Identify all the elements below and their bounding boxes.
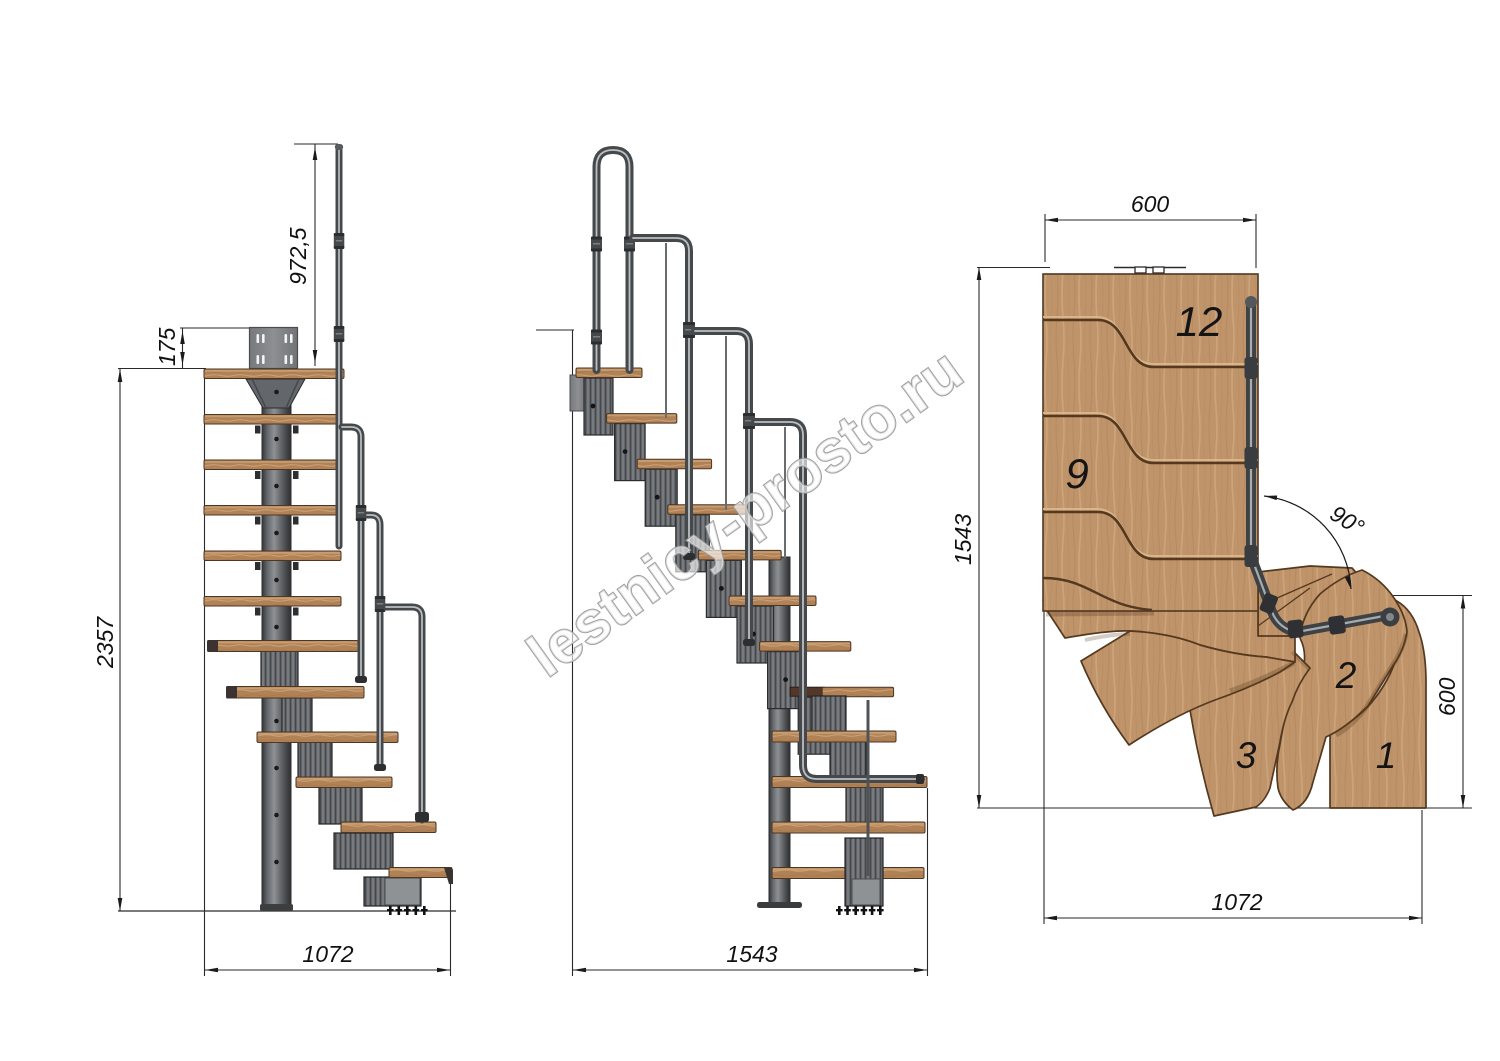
svg-text:3: 3 bbox=[1236, 735, 1257, 776]
svg-text:600: 600 bbox=[1434, 677, 1460, 716]
svg-text:1543: 1543 bbox=[950, 514, 976, 565]
svg-text:1543: 1543 bbox=[726, 941, 777, 967]
svg-text:972,5: 972,5 bbox=[285, 227, 311, 285]
svg-text:1072: 1072 bbox=[1211, 889, 1262, 915]
svg-text:600: 600 bbox=[1131, 191, 1170, 217]
svg-text:2: 2 bbox=[1335, 655, 1357, 696]
svg-text:1072: 1072 bbox=[302, 941, 353, 967]
svg-text:12: 12 bbox=[1176, 298, 1223, 345]
svg-text:2357: 2357 bbox=[92, 616, 118, 669]
svg-text:9: 9 bbox=[1065, 450, 1088, 497]
svg-text:175: 175 bbox=[154, 327, 180, 366]
svg-text:1: 1 bbox=[1376, 735, 1397, 776]
